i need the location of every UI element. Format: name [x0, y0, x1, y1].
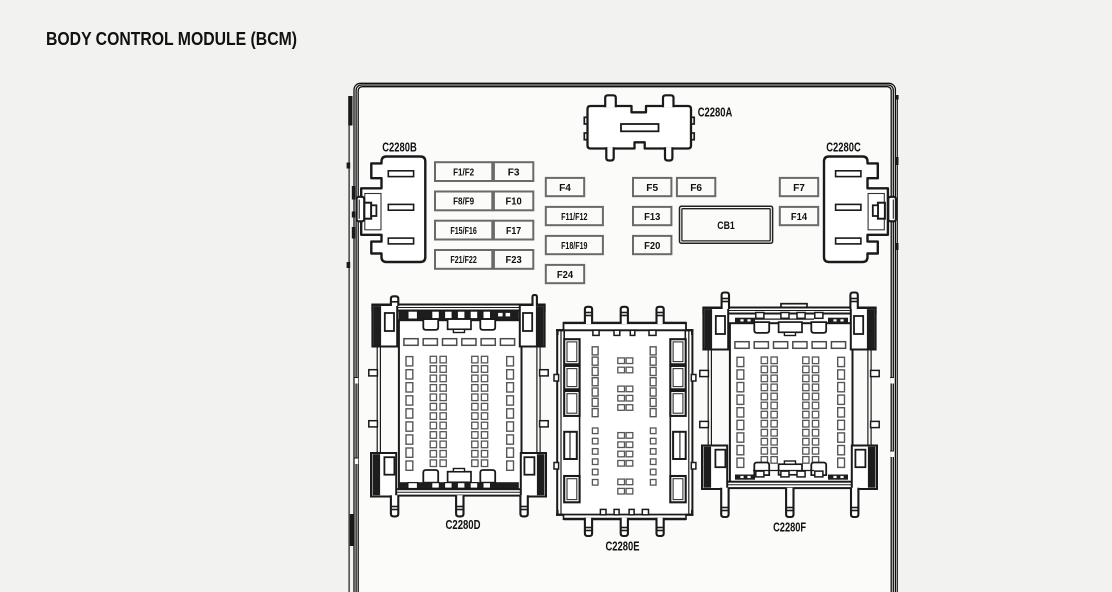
svg-text:F7: F7 — [793, 182, 805, 194]
svg-text:F15/F16: F15/F16 — [450, 225, 477, 237]
svg-text:C2280F: C2280F — [773, 521, 806, 535]
svg-text:F24: F24 — [557, 269, 573, 281]
svg-text:BODY CONTROL MODULE (BCM): BODY CONTROL MODULE (BCM) — [46, 28, 297, 49]
svg-text:C2280A: C2280A — [698, 105, 733, 119]
svg-text:F11/F12: F11/F12 — [561, 211, 588, 223]
svg-text:CB1: CB1 — [717, 220, 735, 232]
svg-text:F3: F3 — [508, 166, 520, 178]
svg-text:C2280B: C2280B — [382, 140, 417, 154]
svg-text:C2280C: C2280C — [826, 140, 861, 154]
svg-text:F4: F4 — [559, 182, 571, 194]
svg-text:F10: F10 — [506, 196, 522, 208]
svg-text:F21/F22: F21/F22 — [450, 254, 477, 266]
svg-text:C2280E: C2280E — [606, 540, 640, 554]
svg-text:C2280D: C2280D — [446, 518, 481, 532]
svg-text:F23: F23 — [506, 254, 522, 266]
svg-text:F18/F19: F18/F19 — [561, 240, 588, 252]
svg-text:F1/F2: F1/F2 — [453, 166, 474, 178]
svg-text:F14: F14 — [791, 211, 807, 223]
svg-text:F13: F13 — [644, 211, 660, 223]
svg-text:F6: F6 — [690, 182, 702, 194]
svg-text:F8/F9: F8/F9 — [453, 196, 474, 208]
svg-text:F5: F5 — [646, 182, 658, 194]
svg-text:F20: F20 — [644, 240, 660, 252]
svg-text:F17: F17 — [506, 225, 521, 237]
